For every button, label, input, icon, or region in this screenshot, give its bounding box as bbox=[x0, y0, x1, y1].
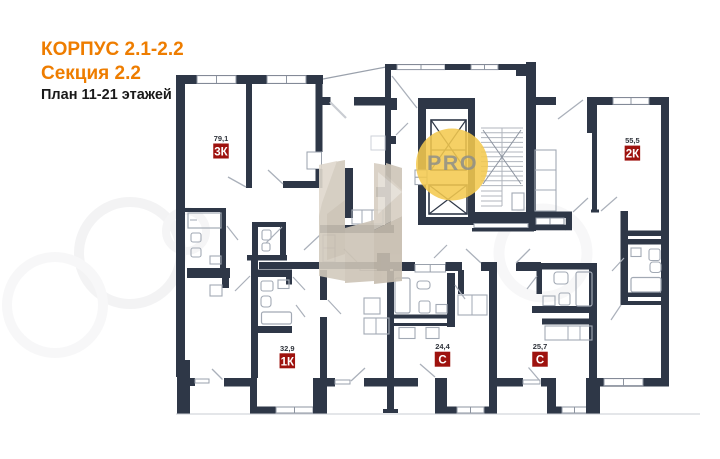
svg-text:25,7: 25,7 bbox=[533, 342, 548, 351]
svg-text:32,9: 32,9 bbox=[280, 344, 295, 353]
svg-text:3К: 3К bbox=[214, 147, 228, 159]
svg-text:С: С bbox=[438, 355, 446, 367]
svg-text:1К: 1К bbox=[281, 356, 295, 368]
svg-text:24,4: 24,4 bbox=[435, 342, 450, 351]
svg-text:С: С bbox=[536, 355, 544, 367]
svg-text:2К: 2К bbox=[626, 149, 640, 161]
svg-text:PRO: PRO bbox=[427, 151, 478, 175]
svg-text:55,5: 55,5 bbox=[625, 136, 640, 145]
svg-text:79,1: 79,1 bbox=[214, 134, 229, 143]
